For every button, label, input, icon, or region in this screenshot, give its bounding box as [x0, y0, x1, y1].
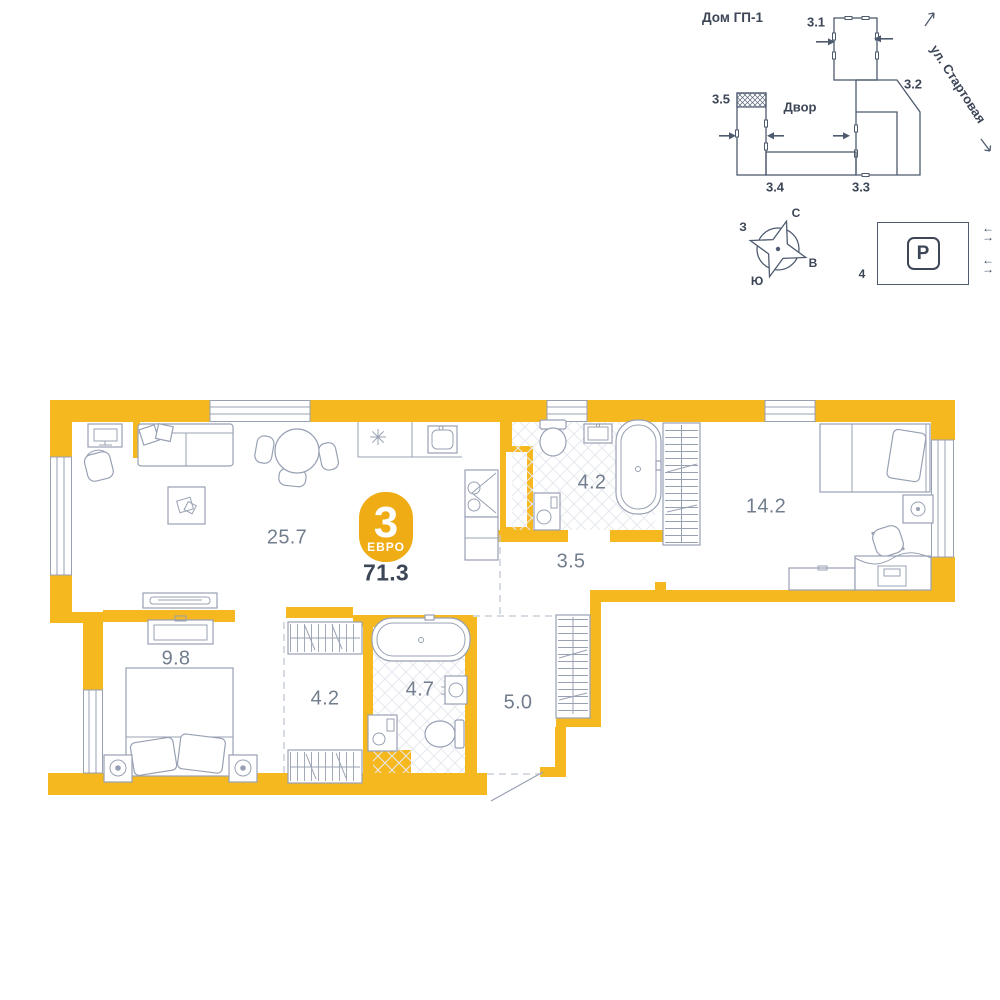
tv-console-living — [143, 593, 217, 608]
window — [84, 690, 103, 773]
wardrobe-closet-bedroom-right — [663, 423, 700, 545]
dresser — [148, 616, 213, 644]
window — [210, 401, 310, 422]
nightstand-right — [229, 755, 257, 782]
apartment-type-badge: 3 ЕВРО — [359, 492, 413, 562]
parking-area: P — [877, 222, 969, 285]
compass-north-label: С — [792, 206, 801, 220]
arrow-right-icon: → — [982, 265, 994, 274]
washing-machine-bottom — [368, 715, 397, 751]
kitchen-cabinet — [465, 517, 498, 560]
highlighted-building-section — [737, 93, 766, 107]
site-plan-title: Дом ГП-1 — [702, 10, 763, 25]
building-label-3-4: 3.4 — [766, 180, 784, 195]
building-3-3 — [856, 112, 897, 175]
site-plan-map — [719, 13, 991, 177]
building-label-3-5: 3.5 — [712, 92, 730, 107]
entrance-arrows — [719, 35, 893, 139]
badge-rooms-count: 3 — [374, 502, 398, 544]
floorplan-page: Дом ГП-1 3.1 3.2 3.3 3.4 3.5 Двор ул. Ст… — [0, 0, 1000, 1000]
area-wardrobe: 4.2 — [311, 688, 340, 711]
wardrobe-rack-bottom — [288, 750, 362, 783]
area-hallway-entrance: 5.0 — [504, 692, 533, 715]
area-living-kitchen: 25.7 — [267, 527, 307, 550]
area-bathroom-top: 4.2 — [578, 472, 607, 495]
bedroom-desk-with-laptop — [789, 553, 931, 590]
office-chair — [82, 447, 114, 482]
area-bedroom-left: 9.8 — [162, 648, 191, 671]
bed-double — [126, 668, 233, 776]
window — [51, 457, 72, 575]
washing-machine-top — [534, 493, 560, 530]
sofa — [138, 424, 233, 466]
bed-single — [820, 424, 930, 492]
wardrobe-rack-top — [288, 622, 362, 654]
bathtub-vertical — [616, 420, 661, 514]
building-label-3-2: 3.2 — [904, 77, 922, 92]
hall-wardrobe — [556, 615, 590, 718]
badge-type-label: ЕВРО — [367, 540, 405, 554]
speaker-nightstand — [903, 495, 933, 523]
window — [547, 401, 587, 422]
desk-with-monitor — [88, 424, 122, 447]
kitchen-counter — [358, 422, 462, 457]
fridge — [465, 470, 498, 517]
toilet-top-bathroom — [540, 420, 566, 456]
coffee-table — [168, 487, 205, 524]
parking-lot-number: 4 — [859, 267, 866, 281]
area-bathroom-bottom: 4.7 — [406, 679, 435, 702]
sink-bottom-bathroom — [441, 676, 467, 704]
toilet-bottom-bathroom — [425, 720, 464, 748]
building-3-2 — [856, 80, 920, 175]
bathtub-horizontal — [372, 615, 470, 661]
parking-arrows-bottom: ← → — [982, 256, 994, 274]
stove-burner-icon — [370, 429, 386, 445]
building-3-1 — [834, 18, 877, 80]
window — [932, 440, 954, 557]
dining-table-with-chairs — [254, 429, 340, 487]
floorplan-graphics — [0, 0, 1000, 1000]
compass-east-label: В — [809, 256, 818, 270]
desk-chair-bedroom — [870, 523, 905, 558]
window — [765, 401, 815, 422]
compass-south-label: Ю — [751, 274, 763, 288]
courtyard-label: Двор — [784, 100, 817, 115]
parking-icon: P — [907, 237, 940, 270]
small-sink — [584, 424, 612, 443]
building-label-3-1: 3.1 — [807, 15, 825, 30]
building-label-3-3: 3.3 — [852, 180, 870, 195]
building-3-4 — [766, 152, 856, 175]
arrow-right-icon: → — [982, 233, 994, 242]
parking-arrows-top: ← → — [982, 224, 994, 242]
total-area: 71.3 — [363, 560, 409, 587]
entrance-door — [487, 772, 543, 801]
nightstand-left — [104, 755, 132, 782]
compass-west-label: З — [739, 220, 747, 234]
kitchen-sink — [428, 426, 457, 453]
area-bedroom-right: 14.2 — [746, 496, 786, 519]
area-hallway-inner: 3.5 — [557, 551, 586, 574]
parking-letter: P — [917, 243, 930, 265]
